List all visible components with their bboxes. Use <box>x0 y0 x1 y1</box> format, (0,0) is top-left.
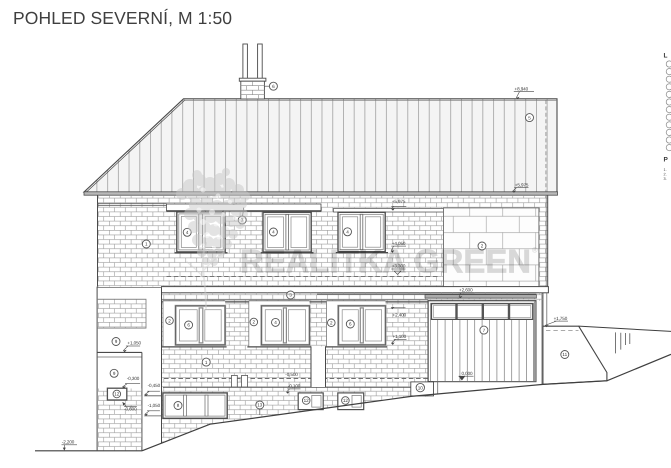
svg-text:+8,940: +8,940 <box>515 86 529 91</box>
svg-text:-2,200: -2,200 <box>62 440 75 445</box>
svg-text:-0,300: -0,300 <box>127 376 140 381</box>
svg-text:P: P <box>664 157 669 164</box>
svg-text:+1,100: +1,100 <box>393 334 407 339</box>
svg-text:REALITKA GREEN: REALITKA GREEN <box>240 243 531 280</box>
svg-text:1: 1 <box>145 242 148 247</box>
svg-text:+2,600: +2,600 <box>459 288 473 293</box>
svg-text:-0,600: -0,600 <box>124 406 137 411</box>
svg-text:-0,450: -0,450 <box>148 383 161 388</box>
svg-text:13: 13 <box>257 403 263 408</box>
svg-text:-0,100: -0,100 <box>288 384 301 389</box>
svg-text:+1,750: +1,750 <box>554 316 568 321</box>
svg-text:2.: 2. <box>664 173 667 177</box>
svg-text:9: 9 <box>115 339 118 344</box>
svg-text:®: ® <box>532 246 538 255</box>
svg-text:L: L <box>664 53 668 60</box>
svg-text:12: 12 <box>343 398 349 403</box>
svg-text:10: 10 <box>418 385 424 390</box>
svg-text:4: 4 <box>272 230 275 235</box>
svg-text:2: 2 <box>168 318 171 323</box>
svg-text:6: 6 <box>349 322 352 327</box>
svg-text:-1,050: -1,050 <box>148 403 161 408</box>
svg-text:7: 7 <box>483 328 486 333</box>
svg-text:11: 11 <box>562 352 567 357</box>
svg-text:5: 5 <box>528 115 531 120</box>
svg-text:0,000: 0,000 <box>462 371 474 376</box>
svg-text:12: 12 <box>114 392 120 397</box>
svg-text:3.: 3. <box>664 177 667 181</box>
svg-text:9: 9 <box>113 371 116 376</box>
svg-text:4: 4 <box>274 320 277 325</box>
svg-text:+5,975: +5,975 <box>515 182 529 187</box>
svg-text:6: 6 <box>272 84 275 89</box>
svg-text:12: 12 <box>304 398 310 403</box>
svg-text:+5,975: +5,975 <box>392 199 406 204</box>
svg-text:2: 2 <box>330 321 333 326</box>
svg-text:1.: 1. <box>664 168 667 172</box>
svg-text:+1,050: +1,050 <box>127 340 141 345</box>
svg-text:POHLED SEVERNÍ, M 1:50: POHLED SEVERNÍ, M 1:50 <box>13 8 232 28</box>
svg-text:8: 8 <box>177 403 180 408</box>
svg-text:6: 6 <box>187 323 190 328</box>
svg-text:4: 4 <box>186 230 189 235</box>
svg-text:4: 4 <box>346 230 349 235</box>
svg-text:2: 2 <box>253 320 256 325</box>
svg-text:1: 1 <box>205 360 208 365</box>
svg-text:-0,500: -0,500 <box>285 372 298 377</box>
svg-text:+2,400: +2,400 <box>393 313 407 318</box>
